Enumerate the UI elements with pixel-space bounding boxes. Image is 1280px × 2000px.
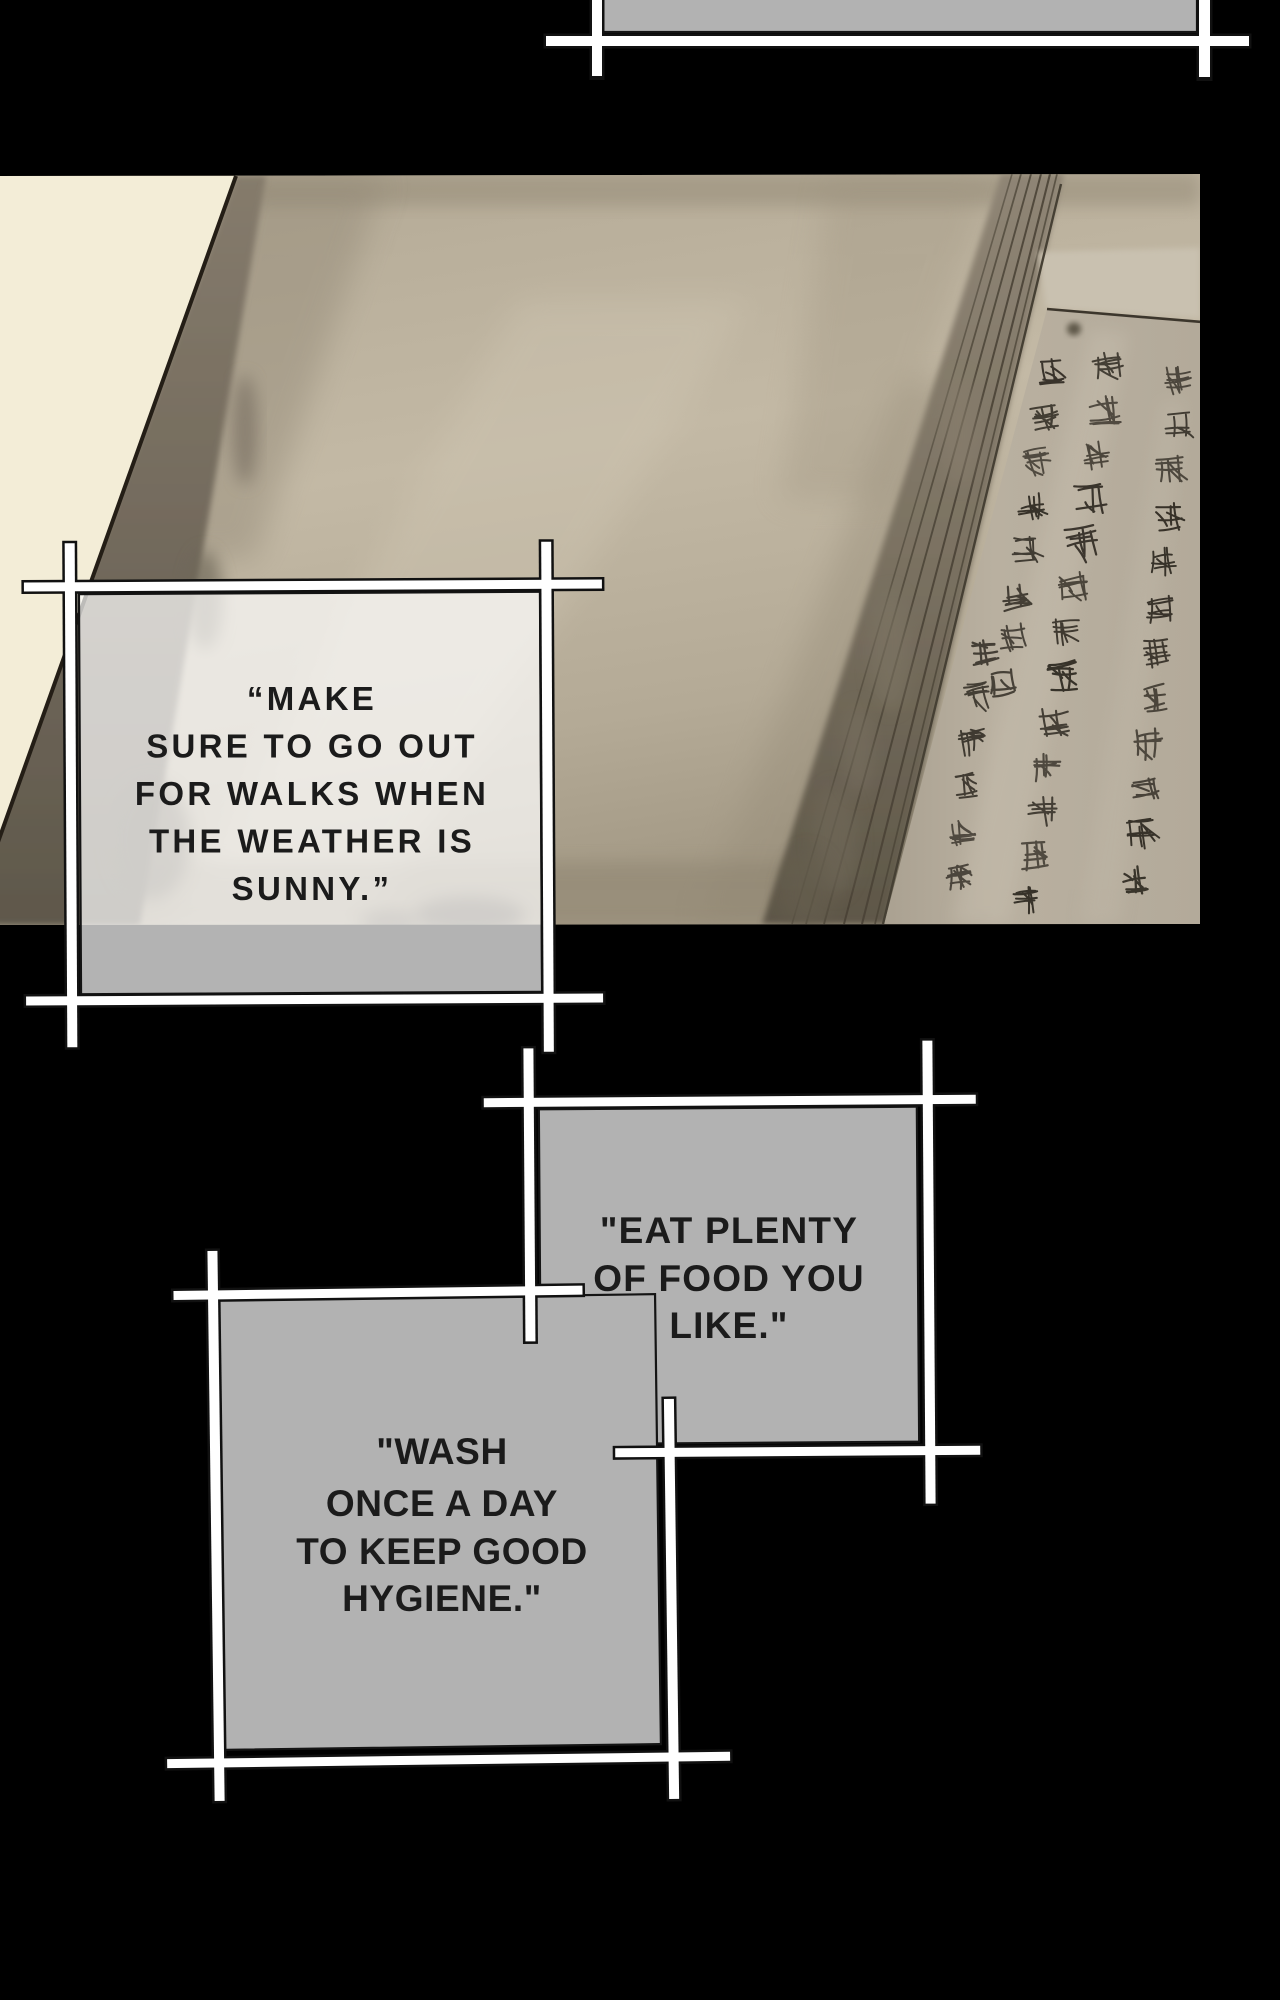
svg-text:ONCE A DAY: ONCE A DAY: [326, 1483, 558, 1524]
svg-text:HYGIENE.": HYGIENE.": [342, 1578, 542, 1619]
svg-text:“MAKE: “MAKE: [247, 680, 377, 717]
svg-text:THE WEATHER IS: THE WEATHER IS: [149, 823, 475, 860]
svg-text:"WASH: "WASH: [376, 1431, 508, 1472]
svg-text:TO KEEP GOOD: TO KEEP GOOD: [296, 1531, 588, 1572]
svg-text:SURE TO GO OUT: SURE TO GO OUT: [146, 728, 478, 765]
svg-text:SUNNY.”: SUNNY.”: [232, 870, 393, 907]
svg-text:FOR WALKS WHEN: FOR WALKS WHEN: [135, 775, 489, 812]
svg-text:LIKE.": LIKE.": [669, 1305, 788, 1346]
svg-text:OF FOOD YOU: OF FOOD YOU: [593, 1258, 865, 1299]
svg-text:"EAT PLENTY: "EAT PLENTY: [600, 1210, 858, 1251]
